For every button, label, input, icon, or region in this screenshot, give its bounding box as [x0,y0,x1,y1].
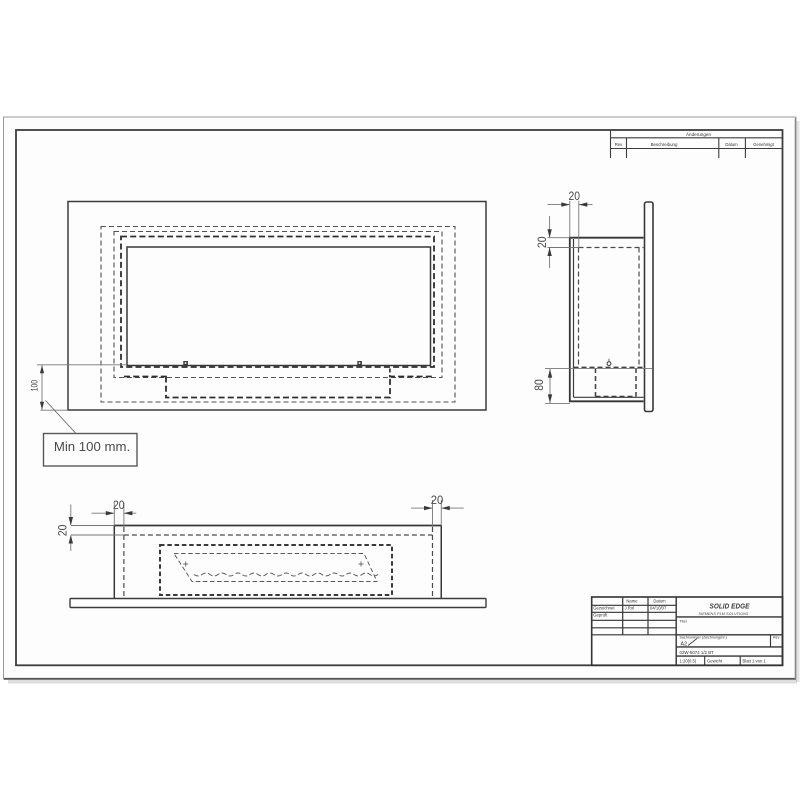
svg-text:Datum: Datum [725,142,738,147]
svg-text:20: 20 [431,493,444,507]
svg-text:100: 100 [30,380,41,392]
svg-text:SOLID EDGE: SOLID EDGE [710,602,751,611]
svg-text:1:20(0.5): 1:20(0.5) [680,659,697,664]
svg-text:Gezeichnet: Gezeichnet [593,606,615,611]
svg-text:04/10/07: 04/10/07 [650,606,667,611]
svg-text:02W-5074 1/2 BT: 02W-5074 1/2 BT [680,650,715,655]
svg-text:Titel: Titel [680,620,687,624]
svg-text:SIEMENS PLM SOLUTIONS: SIEMENS PLM SOLUTIONS [699,612,750,616]
svg-text:Änderungen: Änderungen [686,131,711,137]
svg-text:A2: A2 [681,642,688,648]
svg-text:Blatt 1 von 1: Blatt 1 von 1 [743,659,767,664]
svg-text:Rev: Rev [615,142,623,147]
svg-text:Name: Name [626,599,638,604]
svg-text:Gewicht: Gewicht [707,659,723,664]
svg-text:Min 100 mm.: Min 100 mm. [54,439,130,454]
svg-text:J.Rol: J.Rol [625,606,635,611]
svg-text:20: 20 [569,189,581,203]
svg-text:20: 20 [535,236,549,248]
svg-text:Geprüft: Geprüft [593,613,608,618]
svg-text:Rev: Rev [773,636,780,640]
svg-text:20: 20 [56,524,70,536]
svg-text:Datum: Datum [653,599,666,604]
svg-text:Genehmigt: Genehmigt [753,142,774,147]
svg-text:Sachnummer (Zeichnungsnr.): Sachnummer (Zeichnungsnr.) [680,636,727,640]
svg-text:20: 20 [113,498,125,512]
svg-text:80: 80 [532,379,546,391]
svg-text:Beschreibung: Beschreibung [651,142,678,147]
